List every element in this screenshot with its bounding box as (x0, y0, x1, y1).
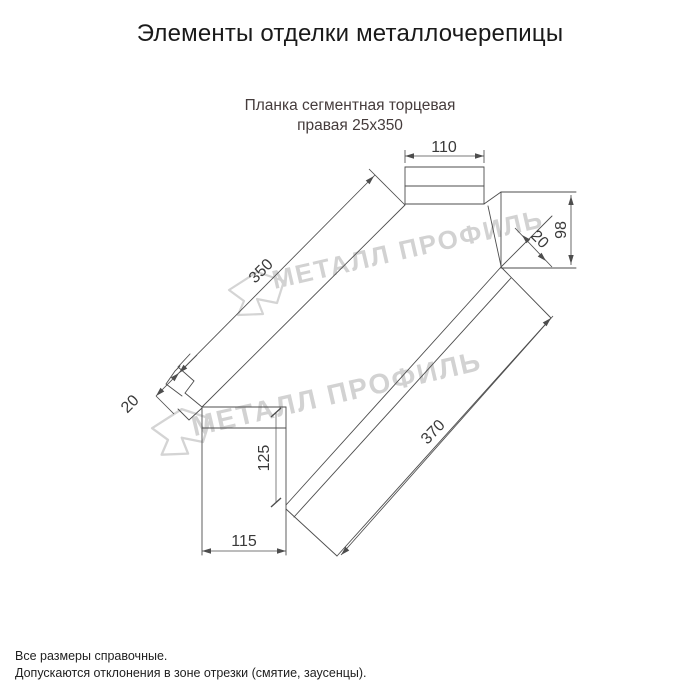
footer-note-line1: Все размеры справочные. (15, 648, 367, 665)
footer-note-line2: Допускаются отклонения в зоне отрезки (с… (15, 665, 367, 682)
dim-20-left-label: 20 (118, 392, 143, 417)
dim-370-label: 370 (418, 417, 449, 448)
watermark-text-upper: МЕТАЛЛ ПРОФИЛЬ (269, 203, 546, 295)
dim-98-label: 98 (553, 221, 570, 239)
dim-110-label: 110 (431, 139, 457, 156)
watermark-layer: МЕТАЛЛ ПРОФИЛЬ МЕТАЛЛ ПРОФИЛЬ (152, 203, 546, 455)
dimension-labels: 110 350 20 98 20 125 370 115 (118, 139, 570, 550)
dim-125-label: 125 (256, 445, 273, 472)
footer-notes: Все размеры справочные. Допускаются откл… (15, 648, 367, 682)
technical-drawing: МЕТАЛЛ ПРОФИЛЬ МЕТАЛЛ ПРОФИЛЬ (0, 0, 700, 700)
dim-115-label: 115 (231, 533, 257, 550)
